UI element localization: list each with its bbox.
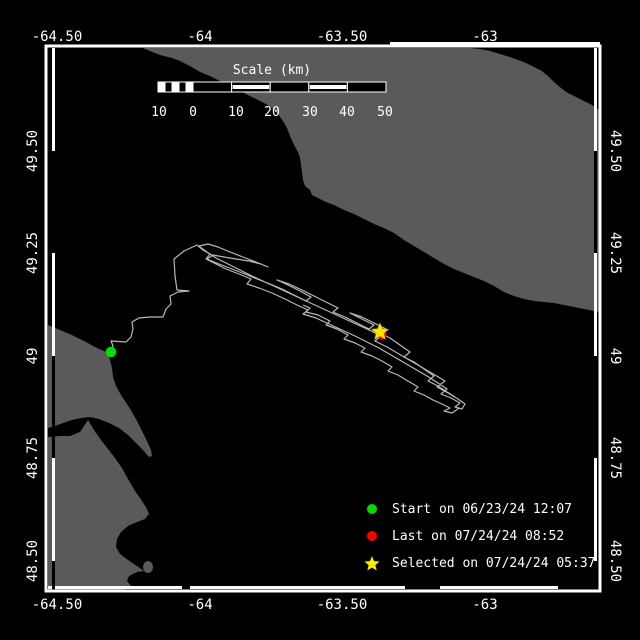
legend-label-start: Start on 06/23/24 12:07 [392, 502, 572, 517]
scale-bar-minor-cell [165, 82, 172, 92]
zebra-segment-left [52, 356, 55, 458]
axis-label-left: 49.25 [25, 232, 41, 274]
axis-label-left: 48.75 [25, 437, 41, 479]
zebra-segment-right [594, 253, 597, 356]
legend-markers [364, 504, 379, 571]
axis-label-left: 48.50 [25, 540, 41, 582]
zebra-segment-right [594, 458, 597, 561]
axis-label-top: -64 [187, 29, 212, 45]
legend-marker-2-star-icon [364, 556, 379, 571]
scale-bar-number: 0 [189, 105, 197, 120]
axis-label-top: -64.50 [32, 29, 83, 45]
scale-bar-minor-cell [158, 82, 165, 92]
zebra-segment-left [52, 253, 55, 356]
map-canvas: Scale (km) 1001020304050 -64.50-64-63.50… [0, 0, 640, 640]
axis-label-bottom: -63.50 [317, 597, 368, 613]
scale-bar-number: 10 [151, 105, 167, 120]
scale-bar-cells [158, 82, 386, 92]
scale-bar-minor-cell [186, 82, 193, 92]
axis-label-bottom: -64.50 [32, 597, 83, 613]
axis-label-right: 48.75 [607, 437, 623, 479]
scale-bar-major-cell [193, 82, 232, 92]
zebra-segment-left [52, 458, 55, 561]
axis-label-right: 48.50 [607, 540, 623, 582]
zebra-segment-bottom [48, 586, 182, 589]
scale-bar-number: 30 [302, 105, 318, 120]
scale-bar-stripe [310, 85, 347, 89]
scale-bar-number: 10 [228, 105, 244, 120]
legend-marker-1-circle-icon [367, 531, 377, 541]
axis-label-right: 49.50 [607, 130, 623, 172]
zebra-segment-bottom [190, 586, 405, 589]
zebra-segment-left [52, 561, 55, 590]
track-map-window: Scale (km) 1001020304050 -64.50-64-63.50… [0, 0, 640, 640]
legend-label-last: Last on 07/24/24 08:52 [392, 529, 564, 544]
legend-marker-0-circle-icon [367, 504, 377, 514]
start-position-marker[interactable] [106, 347, 117, 358]
zebra-segment-right [594, 356, 597, 458]
scale-bar-title: Scale (km) [233, 63, 311, 78]
zebra-segment-bottom [440, 586, 558, 589]
zebra-segment-right [594, 151, 597, 253]
track-strand[interactable] [111, 245, 197, 352]
legend: Start on 06/23/24 12:07 Last on 07/24/24… [364, 502, 595, 571]
scale-bar-minor-cell [179, 82, 186, 92]
scale-bar-major-cell [347, 82, 386, 92]
axis-label-right: 49 [607, 348, 623, 365]
scale-bar-number: 40 [339, 105, 355, 120]
axis-label-left: 49.50 [25, 130, 41, 172]
axis-label-bottom: -64 [187, 597, 212, 613]
scale-bar-number: 50 [377, 105, 393, 120]
axis-label-top: -63.50 [317, 29, 368, 45]
small-island [143, 561, 153, 573]
zebra-segment-bottom [405, 586, 440, 589]
zebra-segment-left [52, 151, 55, 253]
track-layer[interactable] [111, 244, 465, 413]
scale-bar-major-cell [270, 82, 309, 92]
zebra-segment-left [52, 48, 55, 151]
zebra-segment-bottom [558, 586, 600, 589]
track-strand[interactable] [199, 244, 455, 397]
axis-label-right: 49.25 [607, 232, 623, 274]
scale-bar-minor-cell [172, 82, 179, 92]
axis-label-top: -63 [472, 29, 497, 45]
axis-label-bottom: -63 [472, 597, 497, 613]
legend-label-selected: Selected on 07/24/24 05:37 [392, 556, 596, 571]
land-polygon [48, 420, 149, 591]
zebra-segment-bottom [182, 586, 190, 589]
track-strand[interactable] [303, 305, 459, 413]
axis-label-left: 49 [25, 348, 41, 365]
scale-bar-stripe [233, 85, 270, 89]
zebra-segment-right [594, 48, 597, 151]
scale-bar-number: 20 [264, 105, 280, 120]
